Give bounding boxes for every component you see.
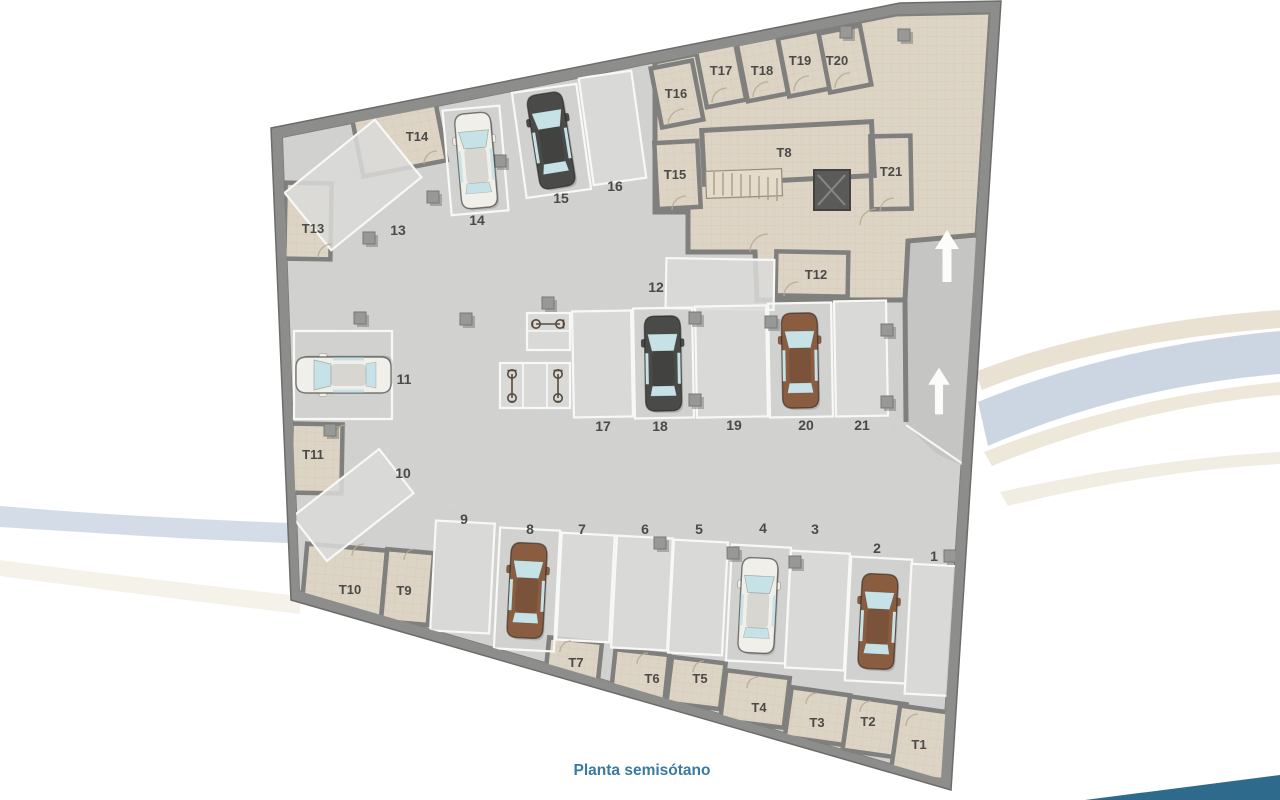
storage-label-t11: T11 — [302, 447, 324, 462]
storage-label-t7: T7 — [568, 655, 583, 670]
car-top-view-icon — [734, 557, 782, 656]
car-top-view-icon — [641, 316, 686, 414]
storage-label-t13: T13 — [302, 221, 324, 236]
parking-label-10: 10 — [395, 465, 411, 481]
parking-spot-5 — [668, 540, 728, 656]
parking-label-9: 9 — [460, 511, 468, 527]
parking-spot-12 — [666, 258, 775, 310]
storage-label-t8: T8 — [776, 145, 791, 160]
floor-plan-svg: 1 2 3 4 5 6 7 8 9 10 11 12 13 14 15 16 1… — [0, 0, 1280, 800]
storage-label-t10: T10 — [339, 582, 361, 597]
parking-spot-19 — [695, 305, 768, 417]
parking-label-18: 18 — [652, 418, 668, 434]
plan-caption: Planta semisótano — [574, 762, 711, 779]
parking-label-20: 20 — [798, 417, 814, 433]
storage-label-t17: T17 — [710, 63, 732, 78]
car-top-view-icon — [854, 573, 902, 672]
floor-plan-page: 1 2 3 4 5 6 7 8 9 10 11 12 13 14 15 16 1… — [0, 0, 1280, 800]
storage-label-t18: T18 — [751, 63, 773, 78]
storage-label-t19: T19 — [789, 53, 811, 68]
parking-label-11: 11 — [397, 371, 412, 387]
storage-label-t9: T9 — [396, 583, 411, 598]
storage-label-t12: T12 — [805, 267, 827, 282]
parking-label-17: 17 — [595, 418, 611, 434]
parking-spot-9 — [430, 521, 495, 634]
parking-label-8: 8 — [526, 521, 534, 537]
corner-wedge-decor — [1085, 775, 1280, 800]
parking-label-1: 1 — [930, 548, 938, 564]
parking-label-15: 15 — [553, 190, 569, 206]
storage-label-t21: T21 — [880, 164, 902, 179]
parking-spot-7 — [556, 533, 615, 643]
parking-label-5: 5 — [695, 521, 703, 537]
storage-label-t2: T2 — [860, 714, 875, 729]
parking-label-6: 6 — [641, 521, 649, 537]
parking-label-12: 12 — [648, 279, 664, 295]
storage-label-t6: T6 — [644, 671, 659, 686]
storage-label-t20: T20 — [826, 53, 848, 68]
parking-label-4: 4 — [759, 520, 767, 536]
parking-label-13: 13 — [390, 222, 406, 238]
parking-label-19: 19 — [726, 417, 742, 433]
parking-label-2: 2 — [873, 540, 881, 556]
parking-label-7: 7 — [578, 521, 586, 537]
parking-label-16: 16 — [607, 178, 623, 194]
storage-label-t3: T3 — [809, 715, 824, 730]
storage-label-t4: T4 — [751, 700, 767, 715]
storage-label-t14: T14 — [406, 129, 429, 144]
parking-spot-6 — [611, 536, 673, 651]
car-top-view-icon — [503, 542, 551, 641]
parking-label-14: 14 — [469, 212, 485, 228]
storage-label-t16: T16 — [665, 86, 687, 101]
car-top-view-icon — [778, 313, 823, 411]
parking-label-21: 21 — [854, 417, 870, 433]
parking-label-3: 3 — [811, 521, 819, 537]
storage-label-t5: T5 — [692, 671, 707, 686]
car-top-view-icon — [296, 354, 393, 397]
parking-spot-21 — [834, 301, 888, 417]
storage-label-t1: T1 — [911, 737, 926, 752]
storage-label-t15: T15 — [664, 167, 686, 182]
parking-spot-17 — [572, 310, 633, 417]
